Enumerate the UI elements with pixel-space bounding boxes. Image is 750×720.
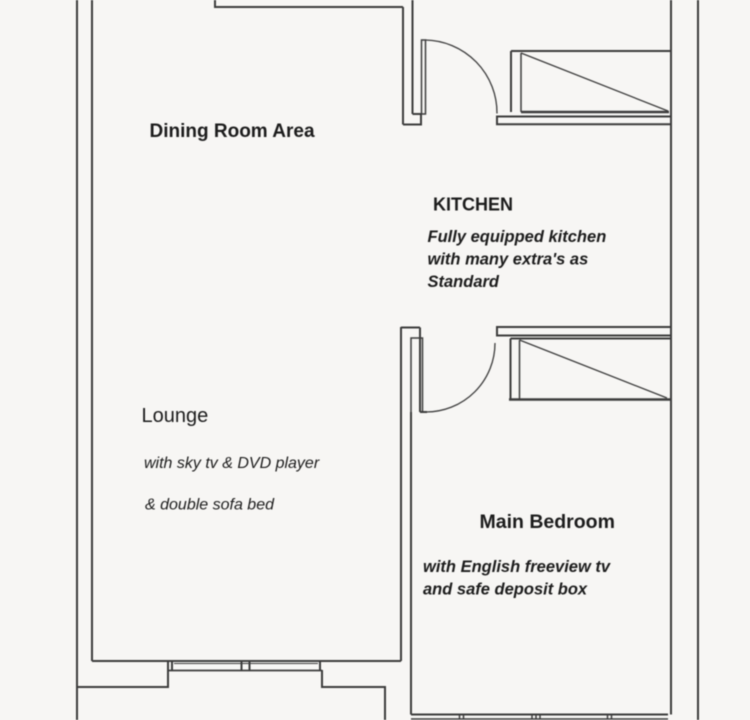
svg-text:with many extra's as: with many extra's as [428, 251, 589, 269]
svg-text:Fully equipped kitchen: Fully equipped kitchen [428, 228, 607, 246]
svg-text:Main Bedroom: Main Bedroom [480, 511, 615, 533]
svg-text:with English freeview tv: with English freeview tv [423, 558, 611, 576]
svg-text:and safe deposit box: and safe deposit box [423, 581, 588, 599]
svg-text:& double sofa bed: & double sofa bed [145, 497, 275, 514]
svg-text:Dining Room Area: Dining Room Area [150, 121, 315, 142]
svg-text:with sky tv & DVD player: with sky tv & DVD player [144, 455, 320, 472]
svg-text:KITCHEN: KITCHEN [433, 195, 513, 215]
svg-text:Standard: Standard [428, 273, 500, 291]
svg-text:Lounge: Lounge [142, 405, 209, 427]
